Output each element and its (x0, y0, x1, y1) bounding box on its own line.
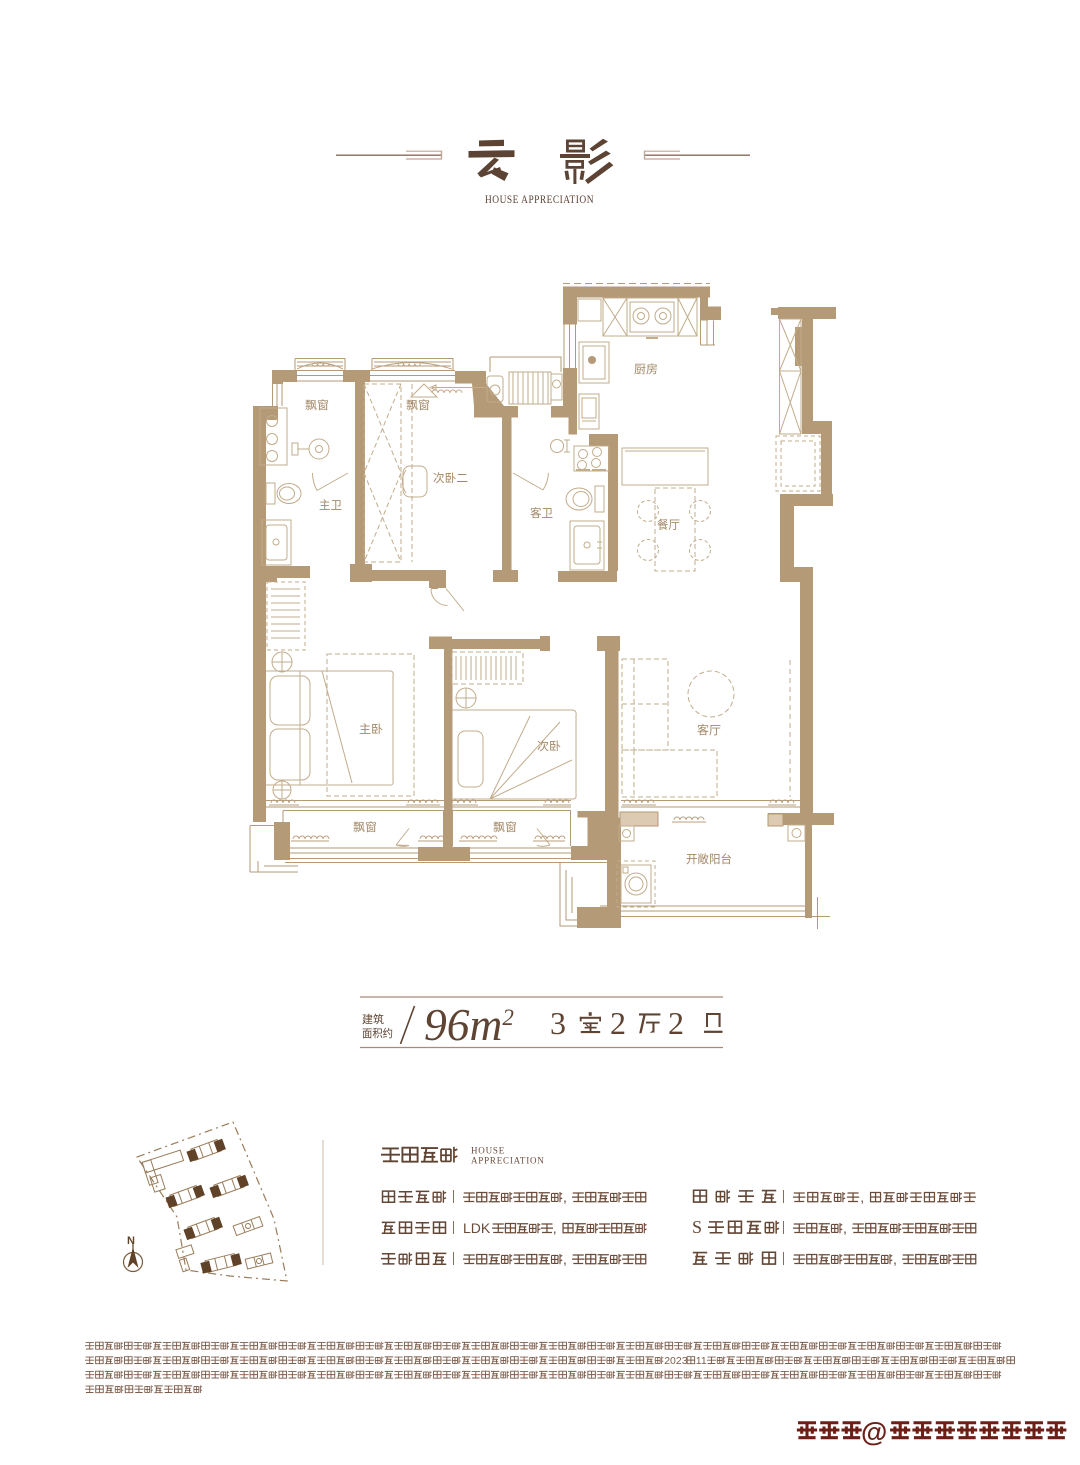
svg-text:主卫: 主卫 (319, 499, 342, 512)
svg-text:3: 3 (550, 1005, 566, 1041)
svg-text:96m2: 96m2 (424, 999, 514, 1050)
svg-text:2023: 2023 (664, 1355, 688, 1367)
svg-text:面积约: 面积约 (362, 1027, 393, 1040)
svg-text:@: @ (861, 1417, 887, 1447)
svg-text:,: , (563, 1251, 567, 1267)
svg-text:建筑: 建筑 (362, 1012, 384, 1026)
svg-text:APPRECIATION: APPRECIATION (471, 1156, 545, 1166)
svg-text:,: , (860, 1189, 864, 1205)
svg-text:N: N (127, 1235, 135, 1247)
svg-text:客卫: 客卫 (530, 506, 553, 520)
svg-text:主卧: 主卧 (359, 723, 384, 736)
svg-text:次卧: 次卧 (537, 739, 562, 753)
svg-text:LDK: LDK (463, 1220, 491, 1236)
svg-text:飘窗: 飘窗 (406, 398, 430, 412)
svg-text:,: , (843, 1220, 847, 1236)
svg-text:,: , (563, 1189, 567, 1205)
svg-text:HOUSE APPRECIATION: HOUSE APPRECIATION (485, 194, 594, 206)
svg-text:11: 11 (696, 1355, 707, 1367)
svg-text:客厅: 客厅 (697, 723, 721, 737)
svg-text:飘窗: 飘窗 (493, 820, 517, 834)
svg-text:次卧二: 次卧二 (433, 471, 468, 485)
svg-text:2: 2 (610, 1005, 626, 1041)
svg-text:S: S (692, 1217, 702, 1237)
svg-text:餐厅: 餐厅 (657, 518, 680, 532)
svg-text:,: , (893, 1251, 897, 1267)
svg-text:厨房: 厨房 (634, 363, 658, 376)
svg-text:飘窗: 飘窗 (353, 820, 377, 834)
svg-text:HOUSE: HOUSE (471, 1146, 505, 1156)
svg-text:,: , (553, 1220, 557, 1236)
svg-text:飘窗: 飘窗 (305, 398, 329, 412)
svg-text:2: 2 (668, 1005, 684, 1041)
svg-text:开敞阳台: 开敞阳台 (686, 852, 732, 866)
